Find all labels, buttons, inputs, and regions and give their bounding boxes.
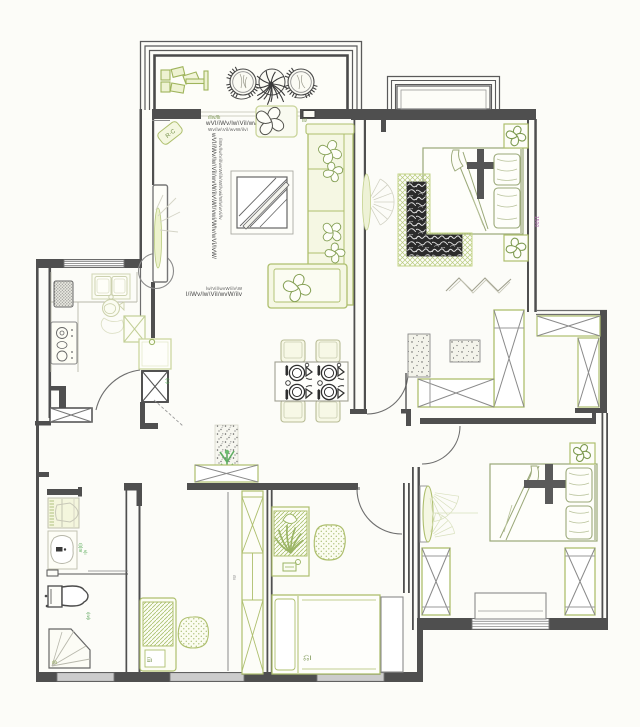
svg-text:ıll/: ıll/: [302, 118, 308, 124]
svg-text:wVl/iWv/lw\Vil/wvW/ilv\Wl/vwi/: wVl/iWv/lw\Vil/wvW/ilv\Wl/vwi/Wlv/wVi/lv…: [210, 132, 217, 259]
svg-text:l/iWv/lw\Vil/wvW/ilv: l/iWv/lw\Vil/wvW/ilv: [186, 291, 243, 298]
svg-text:/iWv/lw\Vil/wvW/ilv\Wl/vwi/Wlv: /iWv/lw\Vil/wvW/ilv\Wl/vwi/Wlv/wVi/lv: [218, 138, 223, 220]
svg-text:1500: 1500: [533, 216, 539, 227]
svg-text:Wv/lw\Vil/wvW/ilv\: Wv/lw\Vil/wvW/ilv\: [208, 127, 249, 132]
svg-text:⌸ı: ⌸ı: [147, 657, 153, 664]
svg-text:ı|ı|ıv: ı|ı|ıv: [77, 543, 83, 553]
svg-text:ıllı: ıllı: [52, 660, 57, 666]
svg-text:ı|ıv|ı: ı|ıv|ı: [86, 612, 91, 620]
svg-text:ı|ı|ı: ı|ı|ı: [165, 378, 170, 384]
svg-text:⎌ı: ⎌ı: [303, 653, 312, 662]
svg-text:ıllıv/llı: ıllıv/llı: [208, 115, 221, 121]
svg-text:ı5ı: ı5ı: [232, 575, 237, 580]
svg-text:lw\Vil/wvW/ilv\W: lw\Vil/wvW/ilv\W: [206, 286, 243, 291]
svg-text:v|ı: v|ı: [83, 550, 88, 555]
